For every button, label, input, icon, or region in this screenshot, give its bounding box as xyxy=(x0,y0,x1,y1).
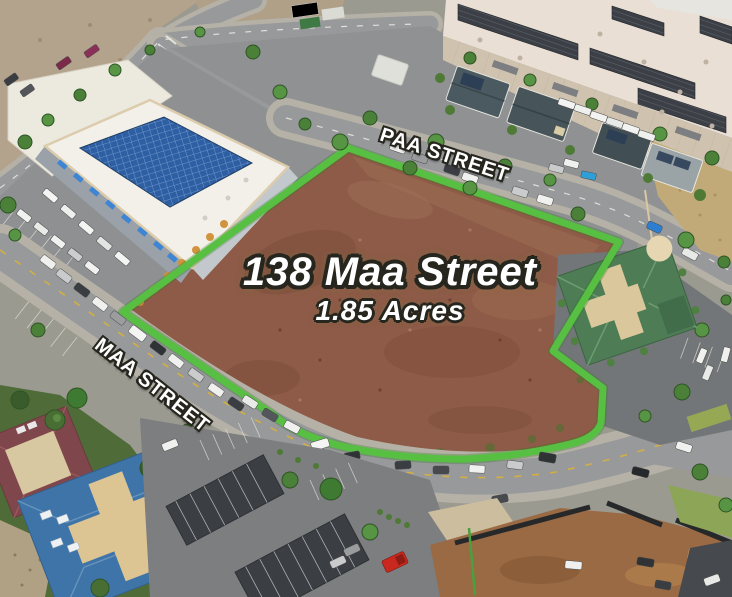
property-acreage: 1.85 Acres xyxy=(170,297,610,325)
property-address-title: 138 Maa Street xyxy=(170,252,610,292)
aerial-photo: 138 Maa Street 1.85 Acres PAA STREET MAA… xyxy=(0,0,732,597)
property-title-overlay: 138 Maa Street 1.85 Acres xyxy=(170,252,610,325)
